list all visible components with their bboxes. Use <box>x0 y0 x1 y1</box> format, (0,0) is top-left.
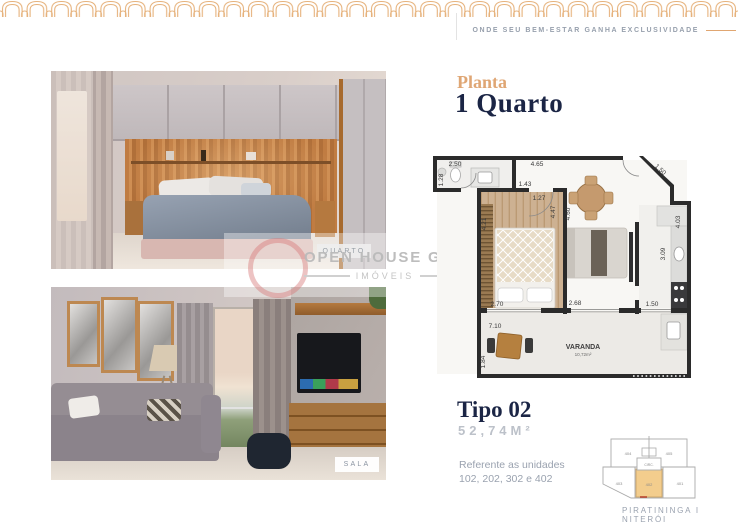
ottoman <box>247 433 291 469</box>
svg-text:404: 404 <box>625 451 632 456</box>
plan-chair <box>585 211 597 220</box>
location-text: PIRATININGA I NITERÓI <box>622 506 738 524</box>
nightstand-left <box>125 201 143 235</box>
sofa-seat <box>51 415 219 461</box>
shelf-picture <box>246 152 256 160</box>
plan-bed-throw <box>497 230 553 282</box>
tagline-dash <box>706 30 736 31</box>
svg-text:1.27: 1.27 <box>533 195 546 202</box>
living-room-photo: SALA <box>51 287 386 480</box>
plan-stove <box>671 282 687 308</box>
area-value: 52,74M² <box>458 423 534 438</box>
plan-toilet <box>451 168 461 182</box>
svg-text:2.70: 2.70 <box>491 301 504 308</box>
sofa-pillow <box>147 399 181 421</box>
tv-app-row <box>300 379 358 389</box>
plan-pillow <box>498 288 523 302</box>
svg-text:405: 405 <box>666 451 673 456</box>
decorative-arch-border <box>0 0 738 17</box>
top-divider-line <box>456 13 457 40</box>
svg-text:1.50: 1.50 <box>646 301 659 308</box>
plan-burner <box>674 298 678 302</box>
watermark-subtitle: IMÓVEIS <box>356 271 415 281</box>
svg-text:3.09: 3.09 <box>660 247 667 260</box>
plan-chair <box>604 192 613 204</box>
varanda-label: VARANDA <box>566 344 600 351</box>
plan-sofa-blanket <box>591 230 607 276</box>
bedroom-upper-cabinets <box>113 85 339 141</box>
plan-burner <box>674 286 678 290</box>
living-photo-label: SALA <box>335 457 379 472</box>
flyer-page: ONDE SEU BEM-ESTAR GANHA EXCLUSIVIDADE Q… <box>0 0 738 527</box>
tagline-row: ONDE SEU BEM-ESTAR GANHA EXCLUSIVIDADE <box>473 27 736 34</box>
svg-text:4.21: 4.21 <box>481 217 488 230</box>
svg-text:4.60: 4.60 <box>565 207 572 220</box>
plan-kitchen-sink <box>674 247 684 261</box>
watermark-dash-left <box>304 275 350 277</box>
svg-text:2.68: 2.68 <box>569 300 582 307</box>
shelf-vase <box>201 150 206 161</box>
plan-kitchen-cabinet <box>657 206 687 226</box>
reference-line2: 102, 202, 302 e 402 <box>459 473 552 485</box>
wall-art-frame <box>67 301 100 367</box>
plan-service-sink <box>667 322 680 339</box>
svg-text:1.28: 1.28 <box>438 173 445 186</box>
svg-text:CIRC.: CIRC. <box>644 463 653 467</box>
wall-art-frame <box>101 297 138 373</box>
key-plan: 404 405 403 402 401 CIRC. <box>601 436 697 502</box>
plan-pillow <box>527 288 552 302</box>
type-label: Tipo 02 <box>457 397 531 423</box>
svg-text:2.50: 2.50 <box>449 161 462 168</box>
sofa-arm <box>201 395 221 453</box>
svg-text:401: 401 <box>677 481 684 486</box>
reference-line1: Referente as unidades <box>459 459 565 471</box>
svg-text:403: 403 <box>616 481 623 486</box>
svg-text:4.03: 4.03 <box>675 215 682 228</box>
tagline-text: ONDE SEU BEM-ESTAR GANHA EXCLUSIVIDADE <box>473 27 699 34</box>
svg-text:4.65: 4.65 <box>531 161 544 168</box>
plan-chair <box>569 192 578 204</box>
tv-stand <box>289 403 386 449</box>
plan-title: 1 Quarto <box>455 88 563 119</box>
svg-text:402: 402 <box>646 482 653 487</box>
shelf-frame <box>166 151 174 160</box>
varanda-area: 10,72m² <box>575 352 592 357</box>
plan-tv <box>629 232 633 282</box>
plan-sink <box>478 172 492 183</box>
svg-text:4.47: 4.47 <box>550 205 557 218</box>
svg-text:7.10: 7.10 <box>489 323 502 330</box>
plan-varanda-table <box>496 333 522 359</box>
nightstand-right <box>315 201 335 237</box>
plan-varanda-chair <box>525 338 533 353</box>
plan-dining-table <box>576 183 606 213</box>
plan-chair <box>585 176 597 185</box>
sofa-pillow <box>68 395 100 419</box>
svg-text:1.84: 1.84 <box>480 355 487 368</box>
watermark-logo-ring <box>248 238 308 298</box>
floor-plan: VARANDA 10,72m² 2.50 1.28 4.65 1.50 1.43… <box>433 150 697 398</box>
bedroom-sheer-curtain <box>51 71 93 269</box>
plan-burner <box>680 298 684 302</box>
plan-varanda-chair <box>487 338 495 353</box>
plan-burner <box>680 286 684 290</box>
bedroom-shelf <box>131 161 331 164</box>
svg-text:1.43: 1.43 <box>519 181 532 188</box>
living-curtain-right <box>253 299 293 451</box>
